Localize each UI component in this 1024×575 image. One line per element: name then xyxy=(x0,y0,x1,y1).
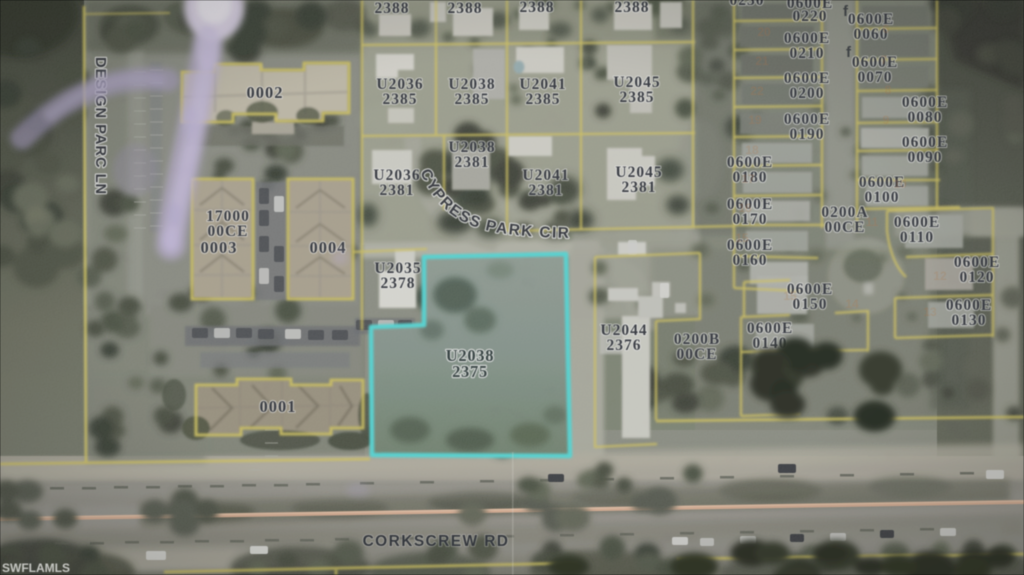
svg-text:SWFLAMLS: SWFLAMLS xyxy=(2,561,70,575)
